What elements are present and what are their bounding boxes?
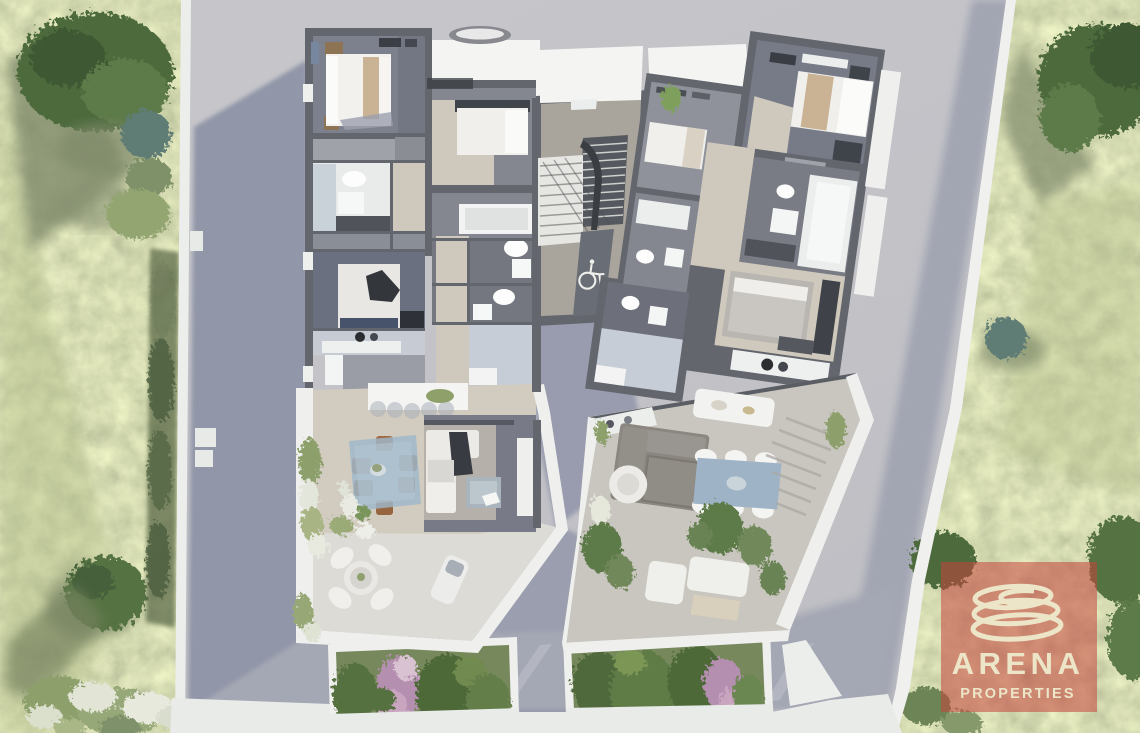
svg-text:PROPERTIES: PROPERTIES [960,686,1075,702]
svg-text:ARENA: ARENA [952,646,1085,681]
